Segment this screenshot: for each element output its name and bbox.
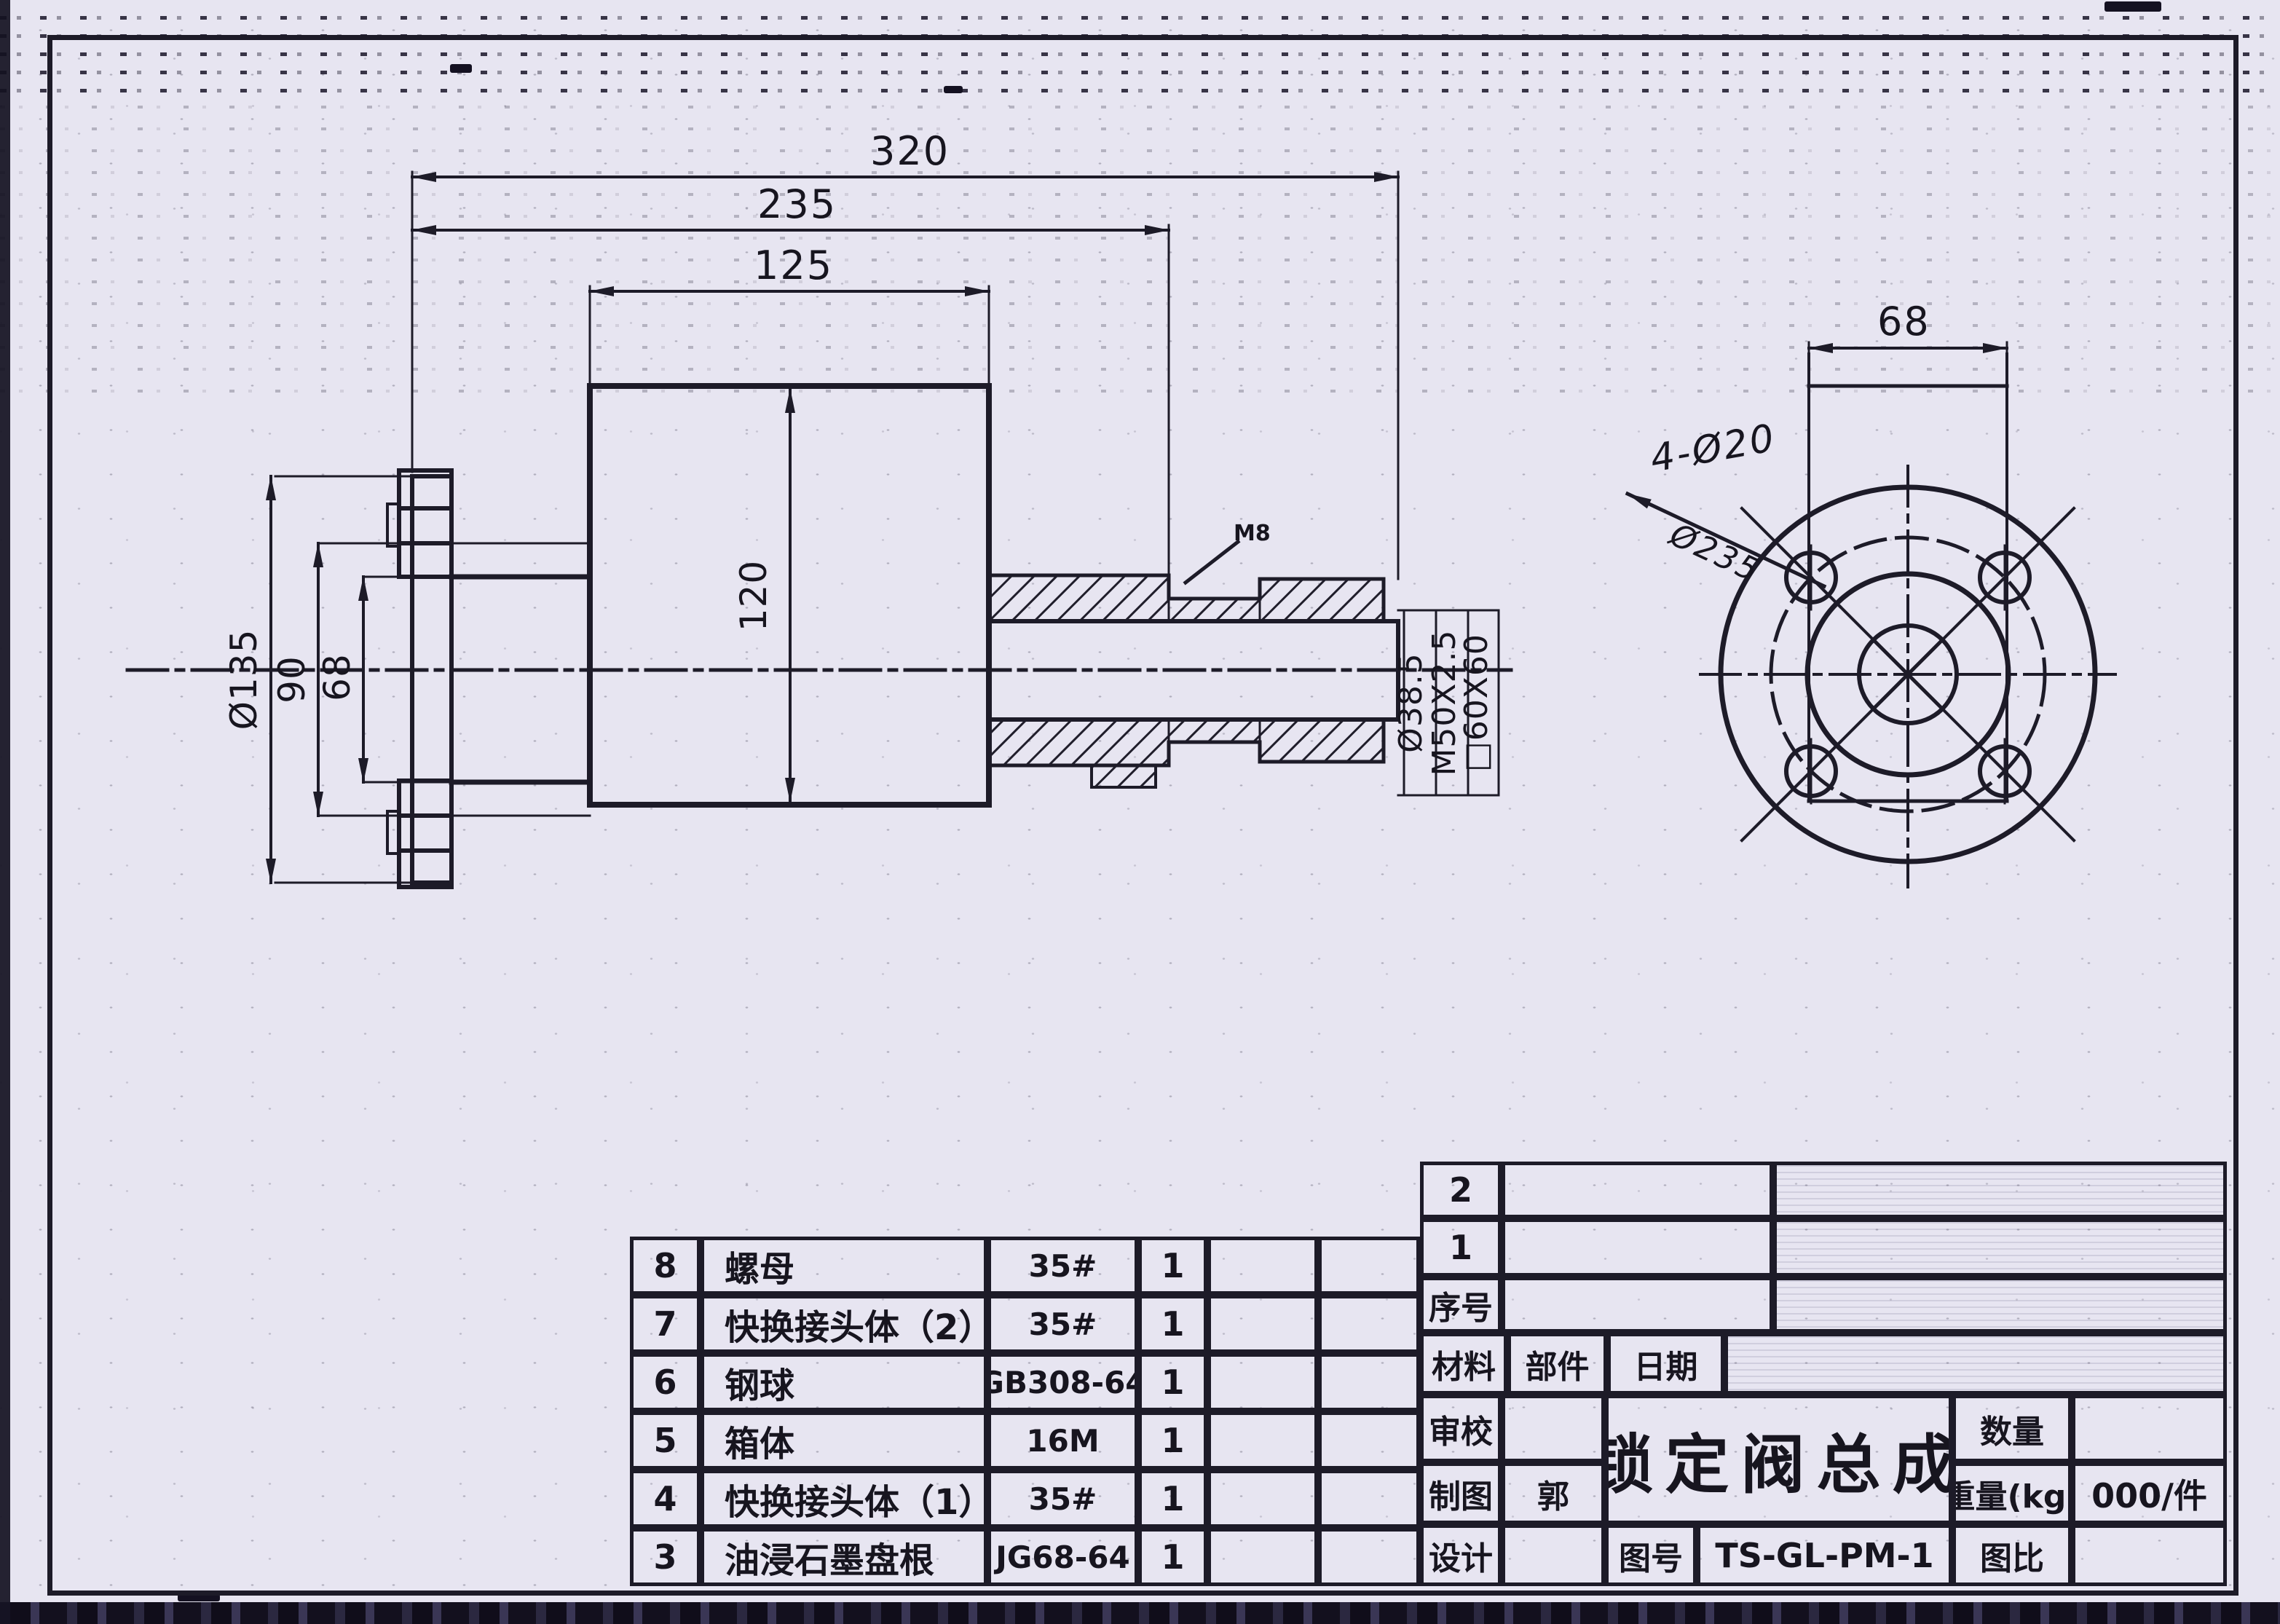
draft-label: 制图 [1420,1462,1502,1524]
scale-label: 图比 [1952,1524,2072,1586]
drawing-title: 锁定阀总成 [1605,1395,1952,1524]
bom-no: 4 [630,1470,701,1528]
bom-name: 快换接头体（2） [701,1295,987,1353]
bom-empty-cell [1318,1528,1420,1586]
bom-qty: 1 [1138,1237,1207,1295]
square-size-label: □60X60 [1458,634,1495,772]
bom-no: 3 [630,1528,701,1586]
title-block-empty-cell [1773,1218,2227,1277]
svg-text:120: 120 [733,560,775,631]
bom-empty-cell [1318,1411,1420,1470]
drawing-no-label: 图号 [1605,1524,1697,1586]
svg-text:Ø135: Ø135 [223,629,265,730]
bom-no: 8 [630,1237,701,1295]
left-flange [387,470,590,887]
weight-value: 000/件 [2072,1462,2227,1524]
end-view: 68 4-Ø20 Ø235 [1628,299,2115,887]
part-header: 部件 [1507,1333,1607,1395]
title-block-serial-2: 2 [1420,1162,1502,1218]
bom-spec: 16M [987,1411,1138,1470]
title-block-serial-1: 1 [1420,1218,1502,1277]
scanned-engineering-drawing: M8 Ø38.5 M50X2.5 □60X60 120 [0,0,2280,1624]
bom-empty-cell [1207,1237,1318,1295]
bom-spec: GB308-64 [987,1353,1138,1411]
bolt-hole-annotation: 4-Ø20 Ø235 [1628,417,1824,591]
bom-no: 7 [630,1295,701,1353]
bolt-circle-label: Ø235 [1663,516,1767,590]
bom-spec: 35# [987,1470,1138,1528]
check-label: 审校 [1420,1395,1502,1462]
design-value [1502,1524,1605,1586]
bom-name: 油浸石墨盘根 [701,1528,987,1586]
bom-empty-cell [1207,1411,1318,1470]
drawing-no-value: TS-GL-PM-1 [1697,1524,1952,1586]
bom-empty-cell [1318,1470,1420,1528]
bom-qty: 1 [1138,1528,1207,1586]
title-block-empty-cell [1773,1277,2227,1333]
title-block-empty-cell [1502,1218,1773,1277]
bom-name: 箱体 [701,1411,987,1470]
bom-no: 6 [630,1353,701,1411]
quantity-label: 数量 [1952,1395,2072,1462]
bom-name: 快换接头体（1） [701,1470,987,1528]
bom-empty-cell [1207,1295,1318,1353]
svg-text:125: 125 [754,243,833,288]
bom-spec: 35# [987,1295,1138,1353]
m8-leader: M8 [1186,521,1271,583]
title-block-empty-cell [1502,1162,1773,1218]
bom-qty: 1 [1138,1353,1207,1411]
bom-empty-cell [1207,1353,1318,1411]
bom-empty-cell [1318,1237,1420,1295]
weight-label: 重量(kg) [1952,1462,2072,1524]
quantity-value [2072,1395,2227,1462]
check-value [1502,1395,1605,1462]
dim-68-top: 68 [1809,299,2007,382]
bom-name: 螺母 [701,1237,987,1295]
bom-qty: 1 [1138,1295,1207,1353]
bore-diameter-label: Ø38.5 [1392,653,1429,753]
main-section-view: M8 Ø38.5 M50X2.5 □60X60 120 [127,128,1511,887]
svg-text:90: 90 [271,655,313,703]
title-block-empty-cell [1773,1162,2227,1218]
dim-320: 320 [412,128,1398,579]
material-header: 材料 [1420,1333,1507,1395]
bom-empty-cell [1318,1353,1420,1411]
design-label: 设计 [1420,1524,1502,1586]
serial-header: 序号 [1420,1277,1502,1333]
bom-spec: 35# [987,1237,1138,1295]
bom-spec: JG68-64 [987,1528,1138,1586]
dim-120: 120 [733,389,790,802]
bom-qty: 1 [1138,1470,1207,1528]
title-block-empty-cell [1502,1277,1773,1333]
holes-count-label: 4-Ø20 [1647,417,1780,481]
dim-68-left: 68 [316,577,451,782]
date-header: 日期 [1607,1333,1724,1395]
draft-value: 郭 [1502,1462,1605,1524]
svg-text:235: 235 [757,181,837,227]
coupling-section [989,575,1398,787]
svg-text:320: 320 [870,128,950,174]
svg-text:68: 68 [316,653,358,701]
bom-empty-cell [1207,1470,1318,1528]
title-block-empty-cell [1724,1333,2227,1395]
bom-name: 钢球 [701,1353,987,1411]
scale-value [2072,1524,2227,1586]
m8-label: M8 [1234,521,1271,546]
bom-empty-cell [1207,1528,1318,1586]
svg-text:68: 68 [1877,299,1930,344]
bom-no: 5 [630,1411,701,1470]
bom-qty: 1 [1138,1411,1207,1470]
bom-empty-cell [1318,1295,1420,1353]
dim-125: 125 [590,243,989,383]
